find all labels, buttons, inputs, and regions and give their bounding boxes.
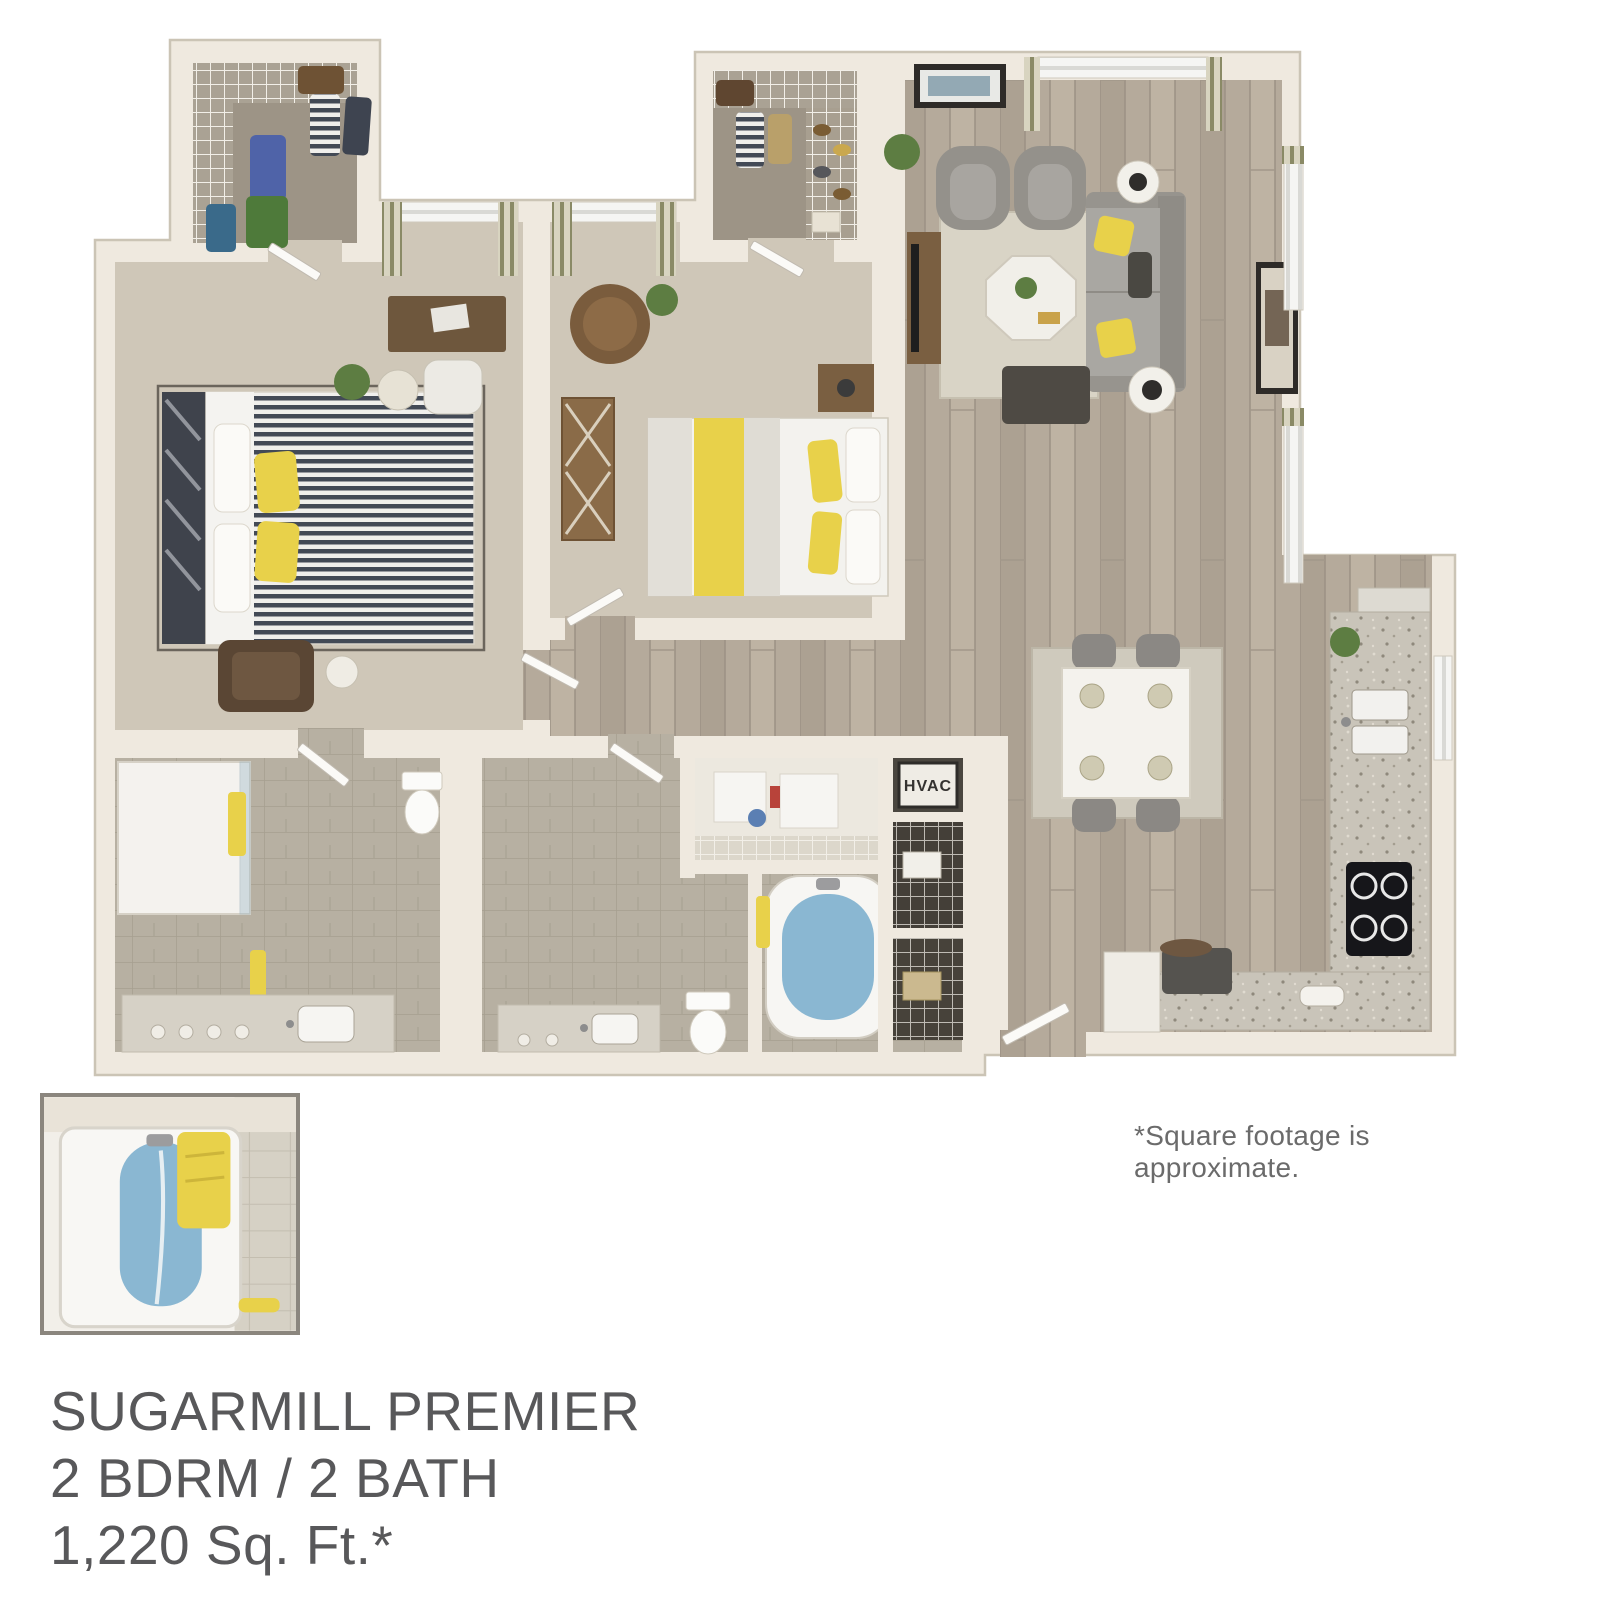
laptop [431,304,470,333]
bag [716,80,754,106]
dresser [562,398,614,540]
armchair [1014,146,1086,230]
coffee-table [986,256,1076,340]
footnote: *Square footage is approximate. [1134,1120,1524,1184]
dark-pillow [1128,252,1152,298]
yellow-soap [239,1298,280,1312]
tile-wall [235,1097,296,1331]
place-setting [1080,684,1104,708]
pillow [214,524,250,612]
yellow-towel [756,896,770,948]
tub-water [782,894,874,1020]
pillow [846,510,880,584]
curtain [498,202,518,276]
place-setting [1148,756,1172,780]
plan-sqft: 1,220 Sq. Ft.* [50,1512,640,1579]
pillow [846,428,880,502]
yellow-pillow [253,450,300,513]
red-bottle [770,786,780,808]
box [812,212,840,232]
blue-jacket [250,135,286,201]
shoes [833,188,851,200]
sink [298,1006,354,1042]
shoes [833,144,851,156]
green-jacket [246,196,288,248]
place-setting [1148,684,1172,708]
wall-art [914,64,1006,108]
window [1284,162,1303,310]
inset-detail [40,1093,300,1335]
vanity [122,995,394,1052]
plant [646,284,678,316]
window [1434,656,1452,760]
dining-chair [1136,634,1180,670]
striped-shirt [310,94,340,156]
dining-chair [1072,634,1116,670]
faucet [816,878,840,890]
basket [903,852,941,878]
floor-plan-image: HVAC [0,0,1600,1600]
pillow [214,424,250,512]
linen-closet [695,758,885,862]
blue-jar [748,809,766,827]
inset-bathtub-photo [44,1097,296,1331]
lamp [1142,380,1162,400]
yellow-runner [694,418,744,596]
shoes [813,124,831,136]
curtain [1024,57,1040,131]
round-side-table [378,370,418,410]
toilet [402,772,442,834]
desk-chair [424,360,482,414]
place-setting [1080,756,1104,780]
dining-chair [1136,796,1180,832]
bag [298,66,344,94]
yellow-pillow [254,521,300,584]
floor-plan: HVAC [0,0,1600,1600]
basket [903,972,941,1000]
navy-shirt [342,96,372,156]
vanity [498,1005,660,1052]
cooktop [1346,862,1412,956]
yellow-pillow [807,511,842,575]
utility-closet [893,938,963,1040]
plant [334,364,370,400]
sofa [1086,192,1186,392]
armchair [936,146,1010,230]
teal-shirt [206,204,236,252]
bathtub [756,876,890,1038]
headboard [162,392,206,644]
curtain [552,202,572,276]
plant [1330,627,1360,657]
dining-area [1032,634,1222,832]
tan-shirt [768,114,792,164]
window [1284,425,1303,583]
curtain [1206,57,1222,131]
sink [592,1014,638,1044]
dining-chair [1072,796,1116,832]
hvac-closet: HVAC [893,758,963,812]
yellow-pillow [1093,215,1136,258]
faucet [146,1134,173,1146]
box [780,774,838,828]
ottoman-bench [1002,366,1090,424]
curtain [382,202,402,276]
shoes [813,166,831,178]
window [1038,57,1208,78]
bar-pedestal [1104,952,1160,1032]
curtain [1282,408,1304,426]
window [384,202,518,222]
hvac-label: HVAC [904,778,952,795]
dish [1300,986,1344,1006]
yellow-pillow [1095,317,1137,359]
curtain [656,202,676,276]
plant [1015,277,1037,299]
yellow-towel [228,792,246,856]
plant [884,134,920,170]
plan-name: SUGARMILL PREMIER [50,1378,640,1445]
utility-closet [893,822,963,928]
lamp [1129,173,1147,191]
dining-table [1062,668,1190,798]
small-table [326,656,358,688]
tv [911,244,919,352]
plan-title-block: SUGARMILL PREMIER 2 BDRM / 2 BATH 1,220 … [50,1378,640,1579]
curtain [1282,146,1304,164]
striped-shirt [736,112,764,168]
plan-bed-bath: 2 BDRM / 2 BATH [50,1445,640,1512]
lamp [837,379,855,397]
